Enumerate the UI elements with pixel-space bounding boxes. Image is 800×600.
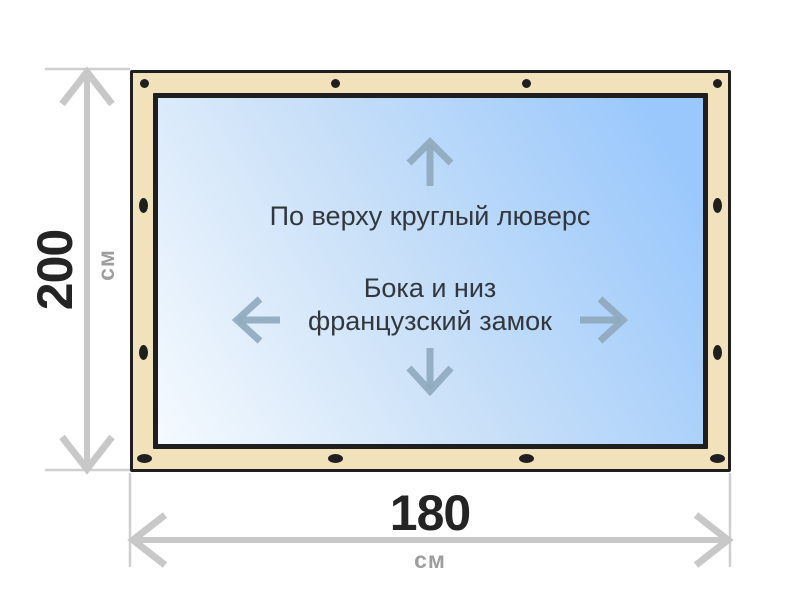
diagram-canvas: По верху круглый люверс Бока и низ франц… bbox=[0, 0, 800, 600]
grommet-icon bbox=[139, 198, 148, 213]
arrowhead-down-icon bbox=[62, 437, 112, 469]
arrowhead-up-icon bbox=[62, 72, 112, 104]
sides-label: Бока и низ французский замок bbox=[180, 272, 680, 338]
grommet-icon bbox=[140, 79, 149, 88]
grommet-icon bbox=[522, 79, 531, 88]
width-value: 180 bbox=[280, 487, 580, 539]
sides-label-line2: французский замок bbox=[180, 305, 680, 338]
grommet-icon bbox=[713, 198, 722, 213]
grommet-icon bbox=[331, 79, 340, 88]
sides-label-line1: Бока и низ bbox=[180, 272, 680, 305]
tarpaulin-frame bbox=[130, 70, 731, 472]
height-unit: см bbox=[91, 205, 121, 325]
grommet-icon bbox=[713, 345, 722, 360]
grommet-icon bbox=[519, 454, 534, 463]
grommet-icon bbox=[710, 454, 725, 463]
grommet-icon bbox=[713, 79, 722, 88]
arrowhead-right-icon bbox=[696, 515, 728, 565]
grommet-icon bbox=[139, 345, 148, 360]
width-unit: см bbox=[330, 547, 530, 573]
window-pane bbox=[153, 93, 708, 449]
grommet-icon bbox=[137, 454, 152, 463]
arrowhead-left-icon bbox=[133, 515, 165, 565]
height-value: 200 bbox=[27, 170, 83, 370]
grommet-icon bbox=[328, 454, 343, 463]
top-edge-label: По верху круглый люверс bbox=[180, 200, 680, 233]
